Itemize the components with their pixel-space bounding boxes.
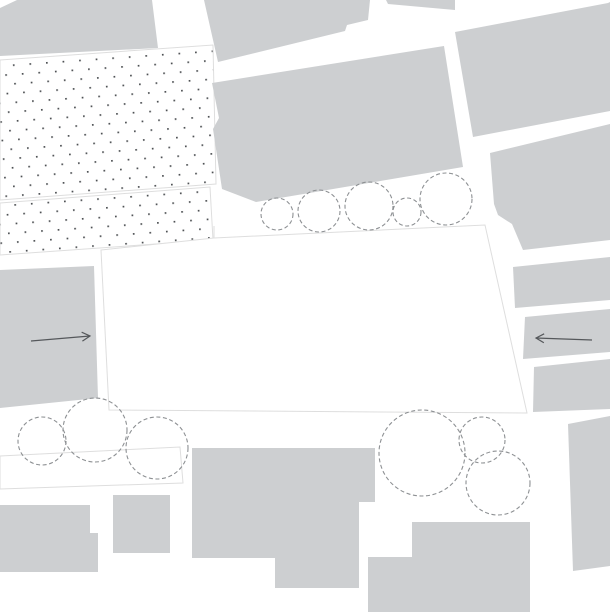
building-bottom-square: [113, 495, 170, 553]
site-plan-svg: [0, 0, 610, 612]
building-right-strip-2: [523, 309, 610, 359]
building-bottom-right-l: [368, 522, 530, 612]
building-top-left: [0, 0, 158, 56]
building-right-upper: [490, 124, 610, 250]
tree-canopy-top-1: [261, 198, 293, 230]
building-bottom-center: [192, 448, 375, 588]
tree-canopy-top-4: [393, 198, 421, 226]
tree-canopy-southeast-1: [379, 410, 465, 496]
walkway-strip: [0, 447, 183, 489]
building-center-north: [212, 46, 463, 202]
building-right-strip-1: [513, 257, 610, 308]
tree-canopy-top-2: [298, 190, 340, 232]
building-top-right: [455, 2, 610, 137]
tree-canopy-southeast-2: [459, 417, 505, 463]
central-plaza-parcel: [101, 225, 527, 413]
building-right-strip-3: [533, 359, 610, 412]
site-plan-figure: [0, 0, 610, 612]
building-top-sliver: [386, 0, 455, 10]
tree-canopy-southeast-3: [466, 451, 530, 515]
tree-canopy-top-3: [345, 182, 393, 230]
tree-canopy-top-5: [420, 173, 472, 225]
building-right-tower: [568, 416, 610, 571]
building-bottom-left-l: [0, 505, 98, 572]
dotted-area-upper: [0, 45, 216, 200]
building-top-mid: [204, 0, 370, 62]
